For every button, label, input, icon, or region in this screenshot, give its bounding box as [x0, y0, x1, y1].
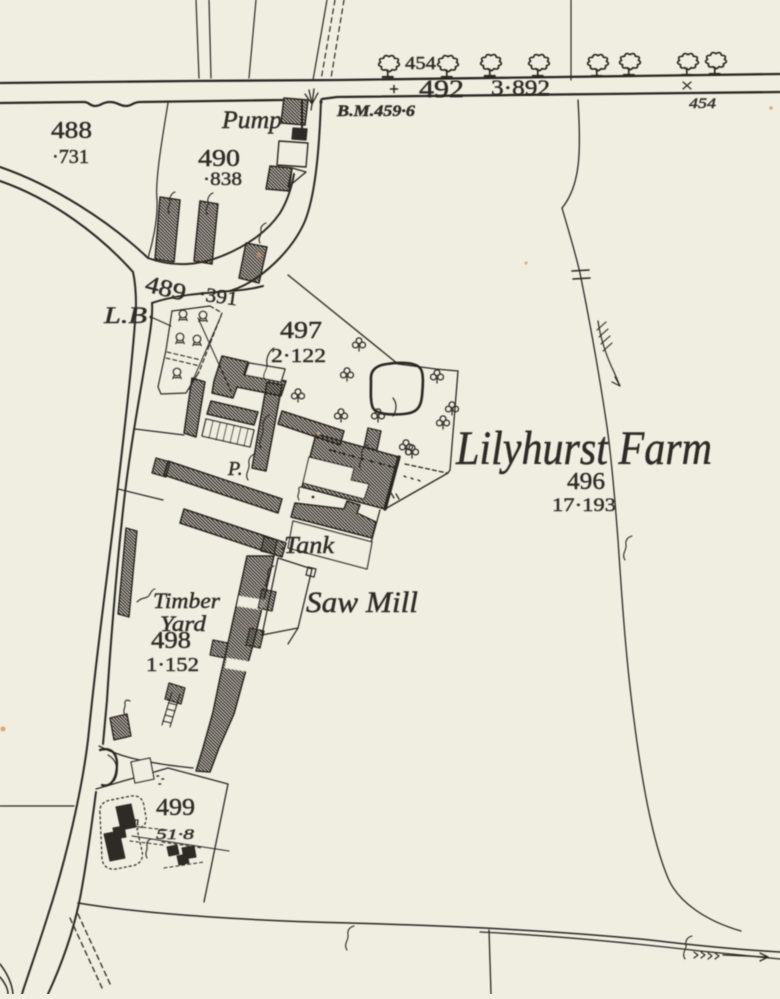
svg-text:n: n [133, 814, 139, 828]
svg-text:454: 454 [405, 53, 436, 73]
svg-text:Timber: Timber [153, 588, 220, 613]
svg-text:2·122: 2·122 [271, 345, 326, 367]
svg-text:499: 499 [156, 795, 195, 821]
svg-text:L.B: L.B [103, 303, 147, 328]
svg-text:Lilyhurst Farm: Lilyhurst Farm [455, 422, 712, 475]
svg-text:488: 488 [51, 118, 92, 144]
svg-text:·838: ·838 [203, 169, 242, 190]
svg-text:Tank: Tank [284, 533, 334, 559]
svg-text:·731: ·731 [52, 146, 89, 168]
svg-text:497: 497 [280, 318, 322, 344]
svg-text:1·152: 1·152 [146, 654, 199, 676]
svg-text:Pump: Pump [221, 107, 282, 134]
svg-text:498: 498 [151, 628, 191, 654]
svg-text:51·8: 51·8 [156, 827, 195, 843]
svg-text:P.: P. [227, 458, 243, 480]
svg-text:492: 492 [419, 76, 464, 103]
svg-text:3·892: 3·892 [491, 75, 550, 100]
svg-text:Saw Mill: Saw Mill [306, 586, 418, 619]
svg-text:B.M.459·6: B.M.459·6 [336, 103, 415, 120]
svg-text:496: 496 [567, 469, 605, 495]
svg-text:17·193: 17·193 [552, 495, 616, 516]
svg-text:454: 454 [689, 96, 717, 112]
